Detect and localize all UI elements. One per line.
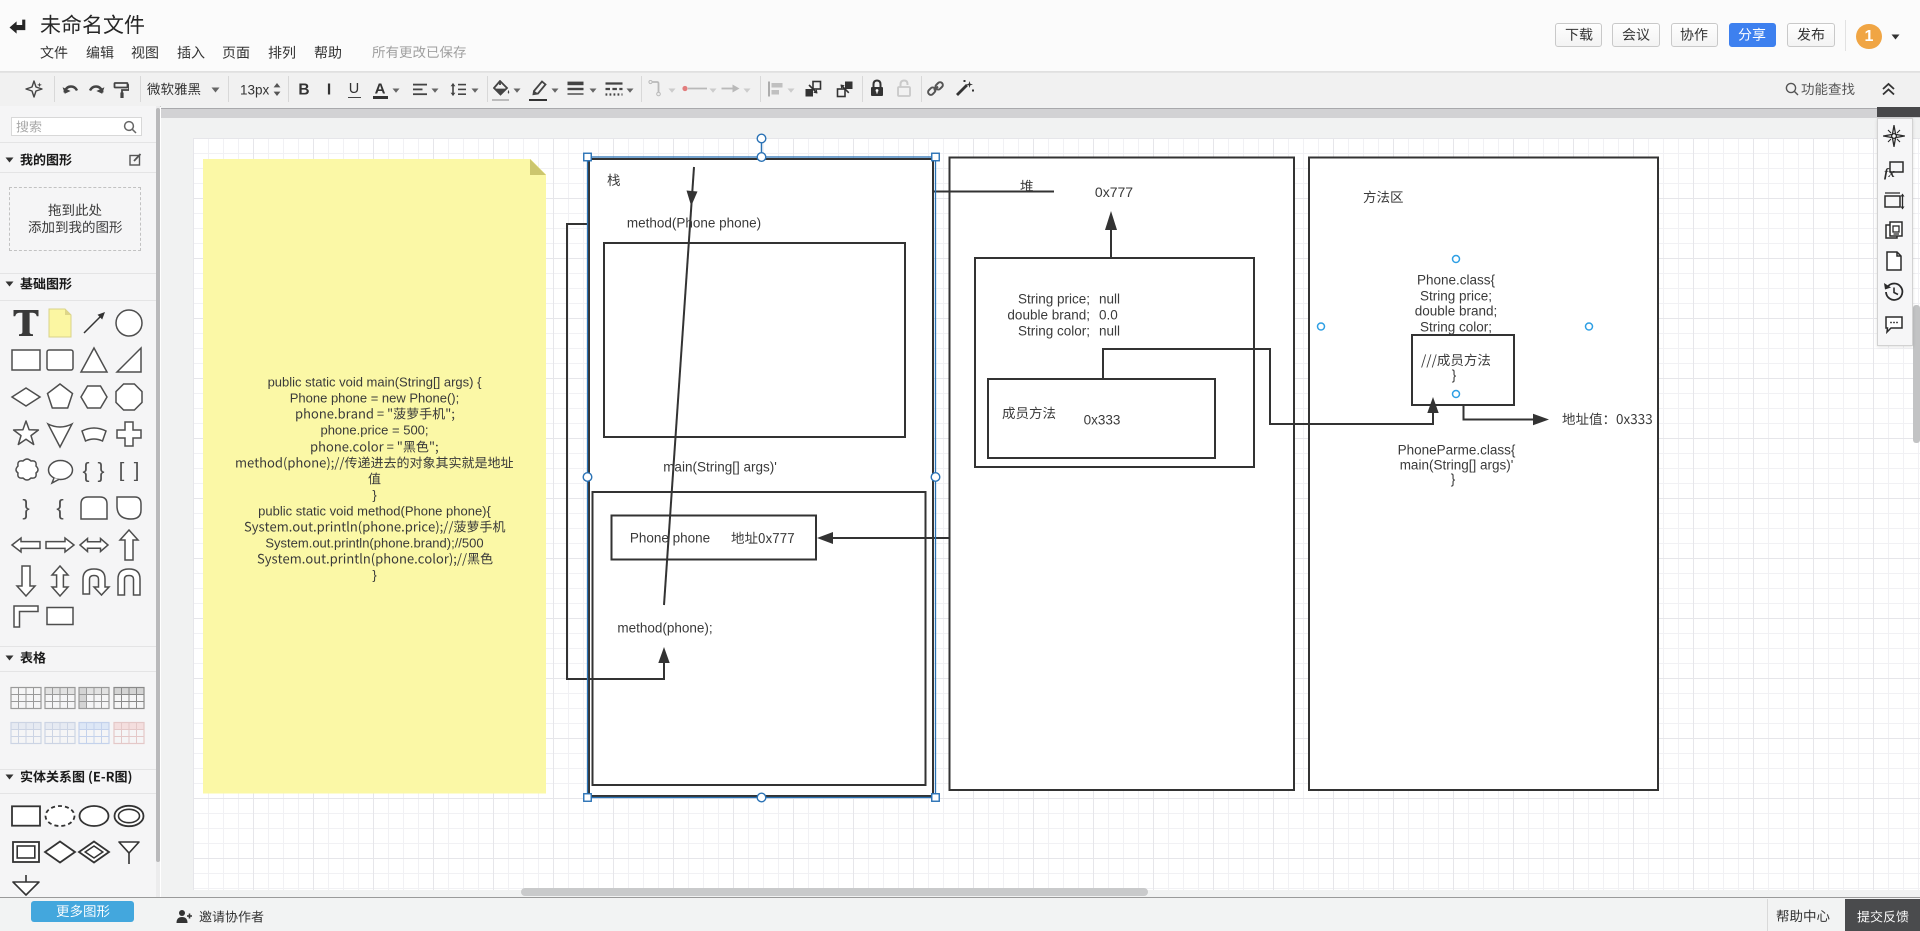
svg-text:fx: fx	[1884, 165, 1895, 180]
